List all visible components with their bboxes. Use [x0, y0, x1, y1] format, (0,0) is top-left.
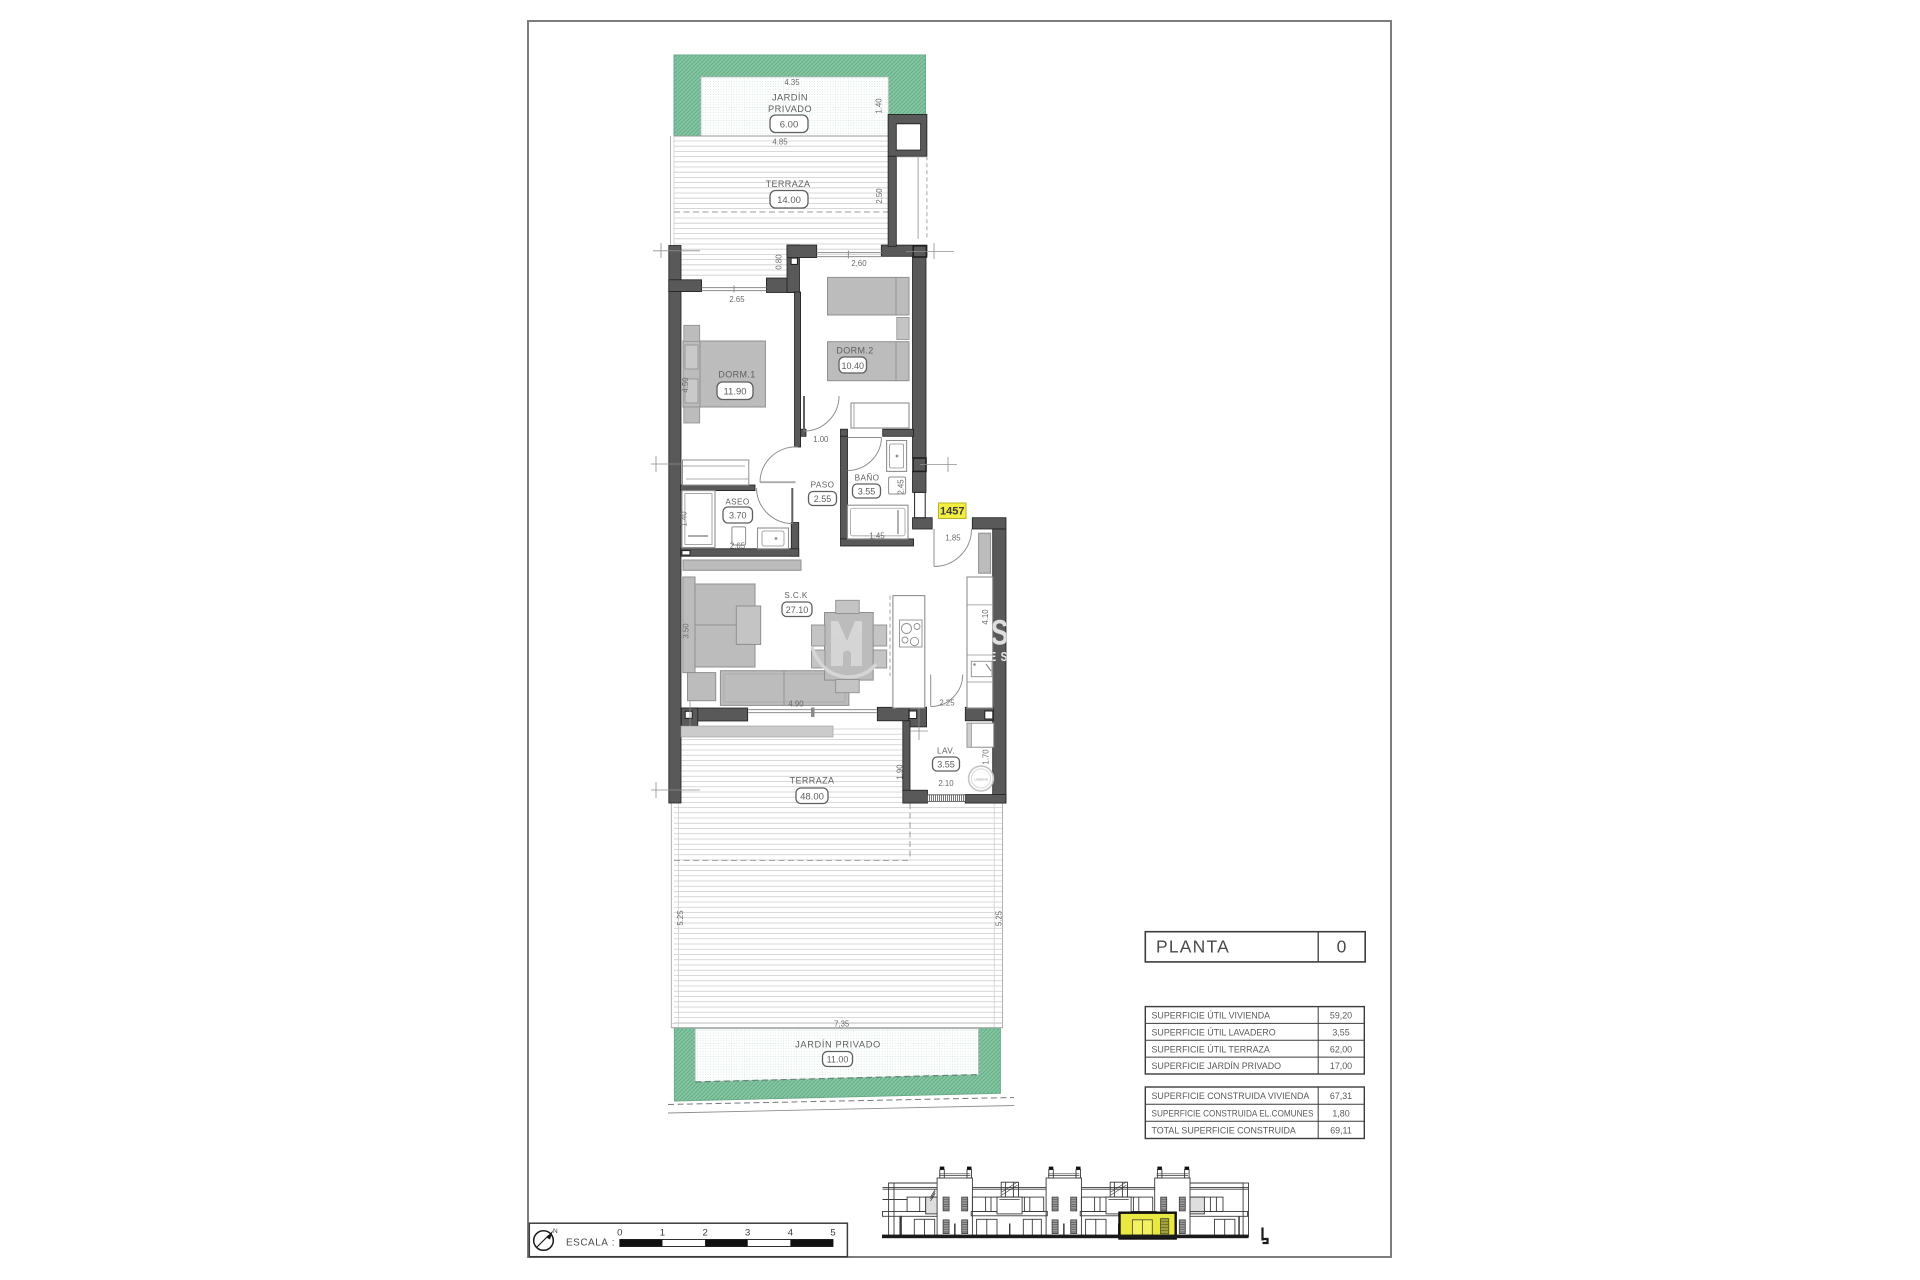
- svg-text:2.45: 2.45: [897, 479, 906, 495]
- svg-text:3.70: 3.70: [729, 511, 747, 521]
- svg-text:5.25: 5.25: [995, 910, 1004, 926]
- svg-text:10.40: 10.40: [842, 361, 865, 371]
- svg-text:1: 1: [660, 1228, 665, 1239]
- svg-text:TERRAZA: TERRAZA: [766, 179, 811, 189]
- svg-text:5.25: 5.25: [676, 910, 685, 926]
- svg-text:S.C.K: S.C.K: [784, 591, 808, 600]
- svg-text:7,35: 7,35: [834, 1020, 850, 1029]
- svg-text:69,11: 69,11: [1330, 1125, 1352, 1135]
- svg-text:11.90: 11.90: [723, 387, 746, 398]
- svg-text:N: N: [553, 1228, 558, 1235]
- svg-text:SUPERFICIE ÚTIL VIVIENDA: SUPERFICIE ÚTIL VIVIENDA: [1152, 1011, 1271, 1021]
- svg-text:48.00: 48.00: [800, 792, 824, 803]
- svg-text:14.00: 14.00: [777, 195, 801, 206]
- svg-text:4.90: 4.90: [788, 700, 804, 709]
- svg-text:2.55: 2.55: [814, 494, 832, 504]
- svg-text:4.10: 4.10: [981, 609, 990, 625]
- svg-text:1457: 1457: [940, 506, 964, 518]
- svg-text:5: 5: [830, 1228, 835, 1239]
- svg-text:2.25: 2.25: [939, 699, 955, 708]
- svg-text:PASO: PASO: [811, 481, 835, 490]
- svg-text:TERRAZA: TERRAZA: [790, 776, 835, 786]
- svg-text:LAV.: LAV.: [937, 747, 955, 756]
- svg-text:DORM.1: DORM.1: [718, 370, 755, 380]
- svg-text:67,31: 67,31: [1330, 1091, 1352, 1101]
- svg-text:3,55: 3,55: [1332, 1028, 1349, 1038]
- svg-text:4.85: 4.85: [772, 138, 788, 147]
- svg-text:11.00: 11.00: [827, 1055, 849, 1065]
- svg-text:PRIVADO: PRIVADO: [768, 104, 812, 114]
- svg-text:3.55: 3.55: [937, 760, 955, 770]
- svg-text:1,85: 1,85: [945, 534, 961, 543]
- svg-text:S: S: [991, 613, 1008, 653]
- svg-text:SUPERFICIE JARDÍN PRIVADO: SUPERFICIE JARDÍN PRIVADO: [1152, 1061, 1282, 1071]
- svg-text:2.50: 2.50: [875, 188, 884, 204]
- svg-text:BAÑO: BAÑO: [855, 473, 880, 483]
- svg-text:1.45: 1.45: [869, 532, 885, 541]
- svg-text:1.00: 1.00: [813, 435, 829, 444]
- svg-text:17,00: 17,00: [1330, 1061, 1352, 1071]
- svg-text:2.65: 2.65: [730, 542, 746, 551]
- svg-text:SUPERFICIE ÚTIL LAVADERO: SUPERFICIE ÚTIL LAVADERO: [1152, 1028, 1276, 1038]
- svg-text:1.90: 1.90: [896, 764, 905, 780]
- svg-text:62,00: 62,00: [1330, 1044, 1352, 1054]
- svg-text:2.10: 2.10: [938, 779, 954, 788]
- svg-text:JARDÍN PRIVADO: JARDÍN PRIVADO: [795, 1040, 881, 1050]
- svg-text:SUPERFICIE CONSTRUIDA VIVIENDA: SUPERFICIE CONSTRUIDA VIVIENDA: [1152, 1091, 1310, 1101]
- svg-text:4: 4: [788, 1228, 793, 1239]
- svg-text:3.50: 3.50: [682, 623, 691, 639]
- svg-text:SUPERFICIE CONSTRUIDA EL.COMUN: SUPERFICIE CONSTRUIDA EL.COMUNES: [1152, 1108, 1314, 1118]
- svg-text:ASEO: ASEO: [725, 498, 749, 507]
- svg-text:JARDÍN: JARDÍN: [772, 93, 808, 103]
- svg-text:59,20: 59,20: [1330, 1011, 1352, 1021]
- svg-text:3.55: 3.55: [858, 487, 876, 497]
- svg-text:27.10: 27.10: [786, 605, 809, 615]
- svg-text:4.50: 4.50: [681, 377, 690, 393]
- svg-text:4.35: 4.35: [784, 78, 800, 87]
- svg-text:2.65: 2.65: [729, 295, 745, 304]
- svg-text:SUPERFICIE ÚTIL TERRAZA: SUPERFICIE ÚTIL TERRAZA: [1152, 1044, 1270, 1054]
- svg-text:0.80: 0.80: [775, 254, 784, 270]
- svg-text:PLANTA: PLANTA: [1156, 937, 1230, 957]
- svg-text:1,80: 1,80: [1332, 1108, 1349, 1118]
- svg-text:3: 3: [745, 1228, 750, 1239]
- svg-text:1.70: 1.70: [982, 749, 991, 765]
- svg-text:0: 0: [617, 1228, 622, 1239]
- svg-text:0: 0: [1337, 937, 1347, 957]
- svg-text:1.40: 1.40: [875, 98, 884, 114]
- svg-text:1.40: 1.40: [680, 511, 689, 527]
- svg-text:Lavadora: Lavadora: [974, 778, 988, 782]
- svg-text:DORM.2: DORM.2: [836, 346, 873, 356]
- svg-text:TOTAL SUPERFICIE CONSTRUIDA: TOTAL SUPERFICIE CONSTRUIDA: [1152, 1125, 1296, 1135]
- svg-text:ESCALA :: ESCALA :: [566, 1238, 615, 1249]
- svg-text:2,60: 2,60: [851, 259, 867, 268]
- svg-text:2: 2: [702, 1228, 707, 1239]
- svg-text:6.00: 6.00: [780, 120, 799, 131]
